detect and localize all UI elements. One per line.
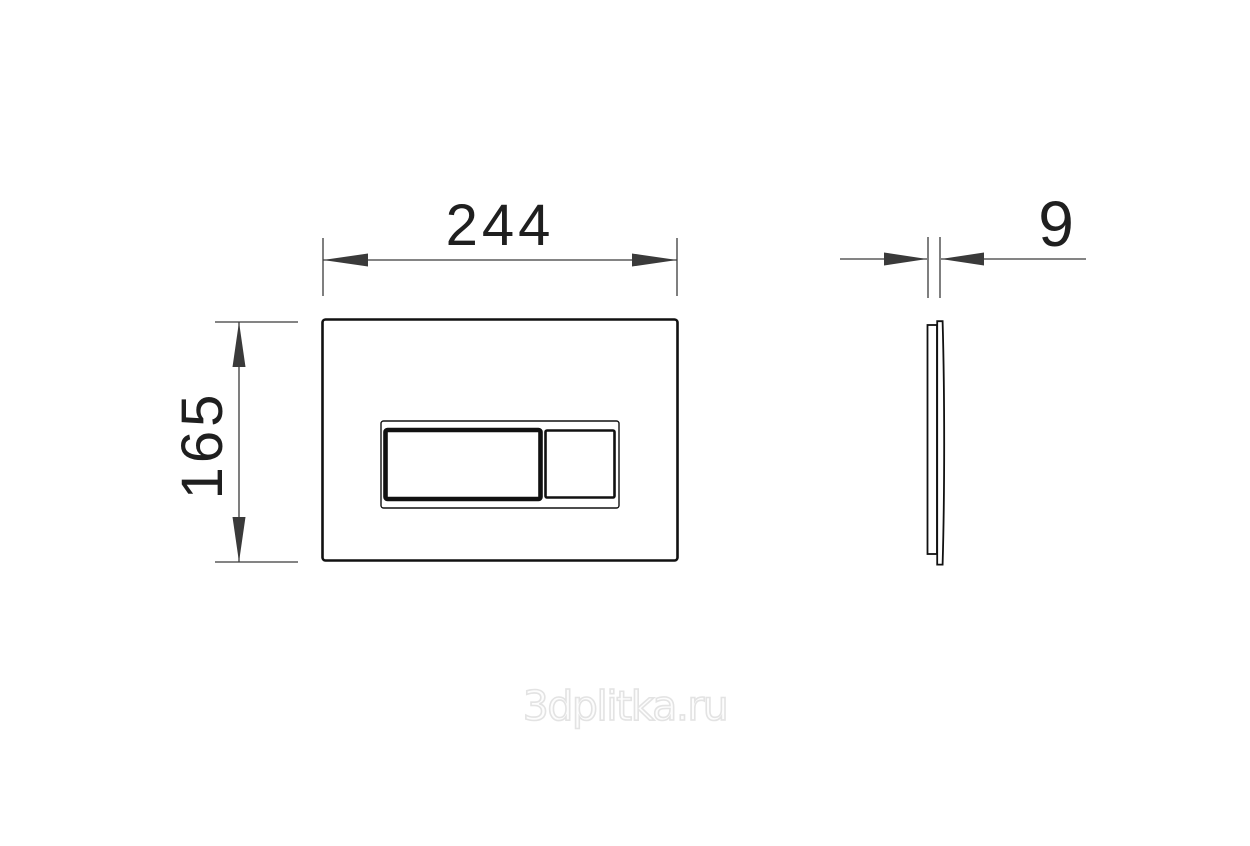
flush-button-small — [546, 431, 615, 498]
side-profile-front-face — [937, 321, 944, 564]
technical-drawing-canvas: 244 165 9 3dplitka.ru — [0, 0, 1250, 846]
technical-drawing-page: 244 165 9 3dplitka.ru — [0, 0, 1250, 846]
flush-button-large — [386, 430, 541, 499]
side-profile-back — [928, 325, 938, 554]
height-dim-arrowhead-top — [233, 322, 246, 367]
thickness-dim-arrowhead-right — [941, 253, 984, 266]
height-dim-label: 165 — [170, 391, 235, 500]
front-view — [323, 320, 678, 561]
watermark-text: 3dplitka.ru — [523, 682, 728, 730]
width-dim-arrowhead-left — [323, 254, 368, 267]
width-dim-label: 244 — [446, 193, 555, 258]
side-view — [928, 321, 945, 564]
height-dim-arrowhead-bottom — [233, 517, 246, 562]
thickness-dim-arrowhead-left — [884, 253, 927, 266]
width-dim-arrowhead-right — [632, 254, 677, 267]
thickness-dim-label: 9 — [1038, 188, 1074, 260]
